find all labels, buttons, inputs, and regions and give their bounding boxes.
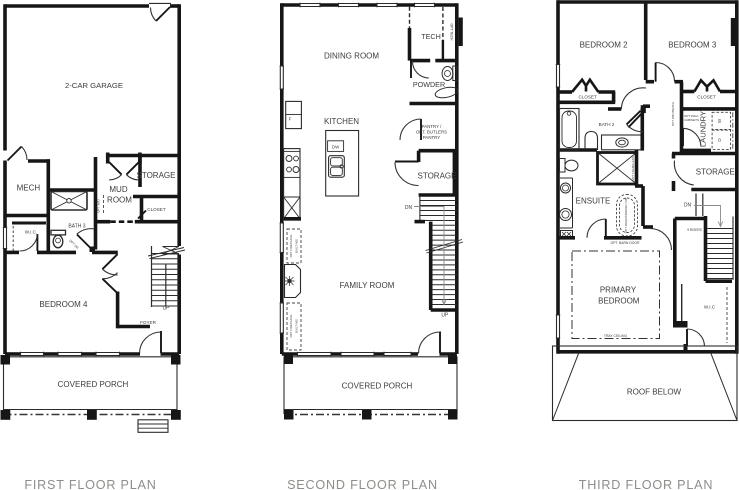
svg-text:BEDROOM 4: BEDROOM 4 [39,300,88,309]
svg-text:POWDER: POWDER [413,80,445,89]
svg-text:PANTRY: PANTRY [423,135,440,140]
svg-text:STORAGE: STORAGE [418,172,457,181]
svg-text:TRAY CEILING: TRAY CEILING [604,334,628,338]
svg-text:UP: UP [163,306,171,312]
svg-text:KITCHEN: KITCHEN [324,117,359,126]
svg-text:BUILT-INS: BUILT-INS [295,239,299,253]
svg-text:STORAGE: STORAGE [696,167,735,176]
svg-text:W.I.C: W.I.C [704,305,716,310]
svg-text:BATH 3: BATH 3 [68,223,85,229]
svg-text:FIRST FLOOR PLAN: FIRST FLOOR PLAN [24,478,156,490]
svg-text:9 RISERS: 9 RISERS [687,228,702,232]
svg-text:STORAGE: STORAGE [137,171,176,180]
svg-text:DN: DN [684,203,692,209]
svg-text:ROOF BELOW: ROOF BELOW [627,387,682,396]
svg-text:FAMILY ROOM: FAMILY ROOM [340,281,395,290]
svg-text:OPT. BUTLERS: OPT. BUTLERS [416,130,447,135]
svg-text:OPT FIREPLACE: OPT FIREPLACE [289,315,293,338]
svg-text:OPT TECH: OPT TECH [450,23,454,41]
svg-text:PRIMARY: PRIMARY [600,286,637,295]
svg-text:UP: UP [441,313,449,319]
svg-text:W: W [717,118,722,123]
svg-text:MECH: MECH [17,184,41,193]
svg-text:CLOSET: CLOSET [147,207,166,212]
svg-text:OPT FRAMELESS: OPT FRAMELESS [631,156,635,180]
svg-text:OPT FIREPLACE: OPT FIREPLACE [289,235,293,258]
svg-text:MUD: MUD [109,185,127,194]
svg-text:CLOSET: CLOSET [697,94,716,99]
svg-text:PANTRY /: PANTRY / [422,124,443,129]
svg-text:COVERED PORCH: COVERED PORCH [58,380,129,389]
svg-text:DN: DN [405,205,413,211]
svg-text:SECOND FLOOR PLAN: SECOND FLOOR PLAN [287,478,438,490]
svg-text:F: F [289,117,292,122]
svg-text:ENSUITE: ENSUITE [576,196,611,205]
svg-text:BEDROOM 3: BEDROOM 3 [668,41,717,50]
svg-text:BEDROOM 2: BEDROOM 2 [580,41,629,50]
svg-text:BATH 2: BATH 2 [599,122,615,127]
svg-text:OPT W/D BENCH: OPT W/D BENCH [671,102,675,126]
svg-text:COVERED PORCH: COVERED PORCH [342,382,413,391]
svg-text:OPT FREESTANDING TUB: OPT FREESTANDING TUB [624,198,628,233]
svg-text:W.I.C.: W.I.C. [25,229,38,234]
svg-text:BUILT-INS: BUILT-INS [295,319,299,333]
svg-text:BEDROOM: BEDROOM [598,296,640,305]
svg-text:LAUNDRY: LAUNDRY [699,111,708,147]
svg-text:CABINETS: CABINETS [684,118,699,122]
svg-text:TECH: TECH [421,32,441,41]
svg-text:DINING ROOM: DINING ROOM [324,52,379,61]
svg-text:2-CAR GARAGE: 2-CAR GARAGE [65,81,123,90]
svg-text:THIRD FLOOR PLAN: THIRD FLOOR PLAN [579,478,714,490]
svg-text:OPT. BARN DOOR: OPT. BARN DOOR [610,241,640,245]
svg-text:CLOSET: CLOSET [579,94,598,99]
svg-text:DW: DW [332,145,340,150]
svg-text:OPT W/D: OPT W/D [97,199,101,213]
svg-text:FOYER: FOYER [140,320,157,325]
svg-text:ROOM: ROOM [107,196,132,205]
